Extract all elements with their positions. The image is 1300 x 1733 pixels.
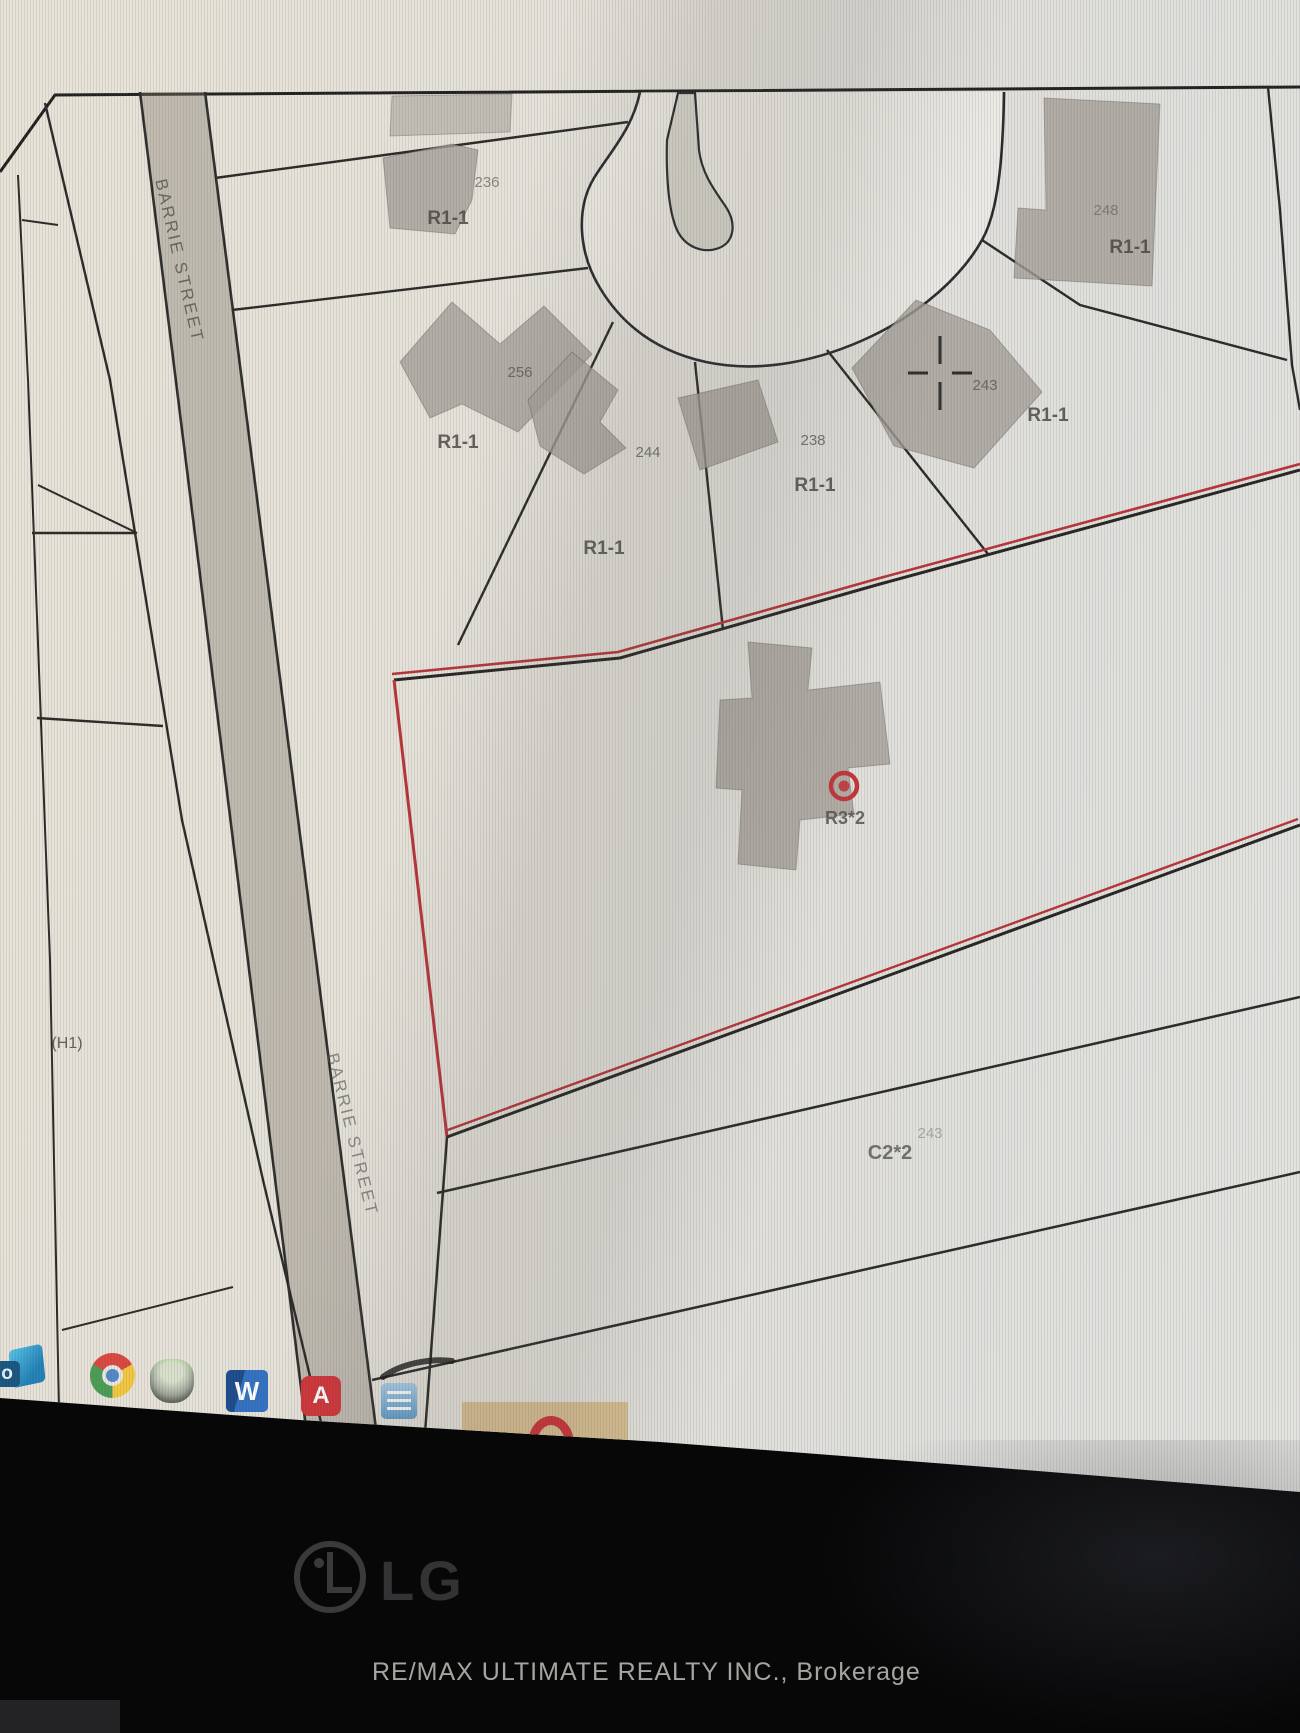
zoning-label: R1-1 <box>583 538 625 559</box>
parcel-line <box>62 1287 233 1330</box>
brokerage-caption: RE/MAX ULTIMATE REALTY INC., Brokerage <box>372 1658 921 1687</box>
zoning-label: R1-1 <box>794 475 836 496</box>
zoning-label: R1-1 <box>1027 405 1069 426</box>
parcel-line <box>372 1172 1300 1380</box>
subject-parcel-outline-black <box>447 825 1300 1137</box>
zoning-label: R1-1 <box>1109 237 1151 258</box>
parcel-line <box>18 175 60 1460</box>
zoning-label: (H1) <box>51 1035 82 1052</box>
taskbar-icon-antivirus[interactable] <box>150 1359 194 1403</box>
parcel-line <box>22 220 58 225</box>
taskbar-icon-acrobat[interactable]: A <box>301 1376 341 1416</box>
building-footprint <box>678 380 778 470</box>
desk-corner <box>0 1700 120 1733</box>
zoning-label: R1-1 <box>437 432 479 453</box>
taskbar-icon-chrome[interactable] <box>90 1353 135 1398</box>
zoning-label: R1-1 <box>427 208 469 229</box>
monitor-bezel-sheen <box>820 1440 1300 1733</box>
lg-emblem-face <box>330 1552 352 1590</box>
taskbar-icon-outlook[interactable]: o <box>0 1347 46 1393</box>
opera-o-icon <box>528 1416 574 1472</box>
taskbar-icon-opera-active-tile[interactable] <box>462 1402 628 1486</box>
lg-wordmark: LG <box>380 1549 466 1612</box>
taskbar-icon-word[interactable]: W <box>226 1370 268 1412</box>
lot-number: 243 <box>972 377 997 394</box>
lg-logo: LG <box>282 1532 542 1627</box>
building-footprint <box>716 642 890 870</box>
lot-number: 238 <box>800 432 825 449</box>
lot-number: 256 <box>507 364 532 381</box>
subject-marker-dot <box>839 781 850 792</box>
subject-parcel-outline-red <box>445 819 1298 1131</box>
parcel-line <box>232 268 588 310</box>
outlook-o-icon: o <box>0 1361 20 1387</box>
parcel-line <box>1268 87 1300 410</box>
parcel-line <box>38 485 137 533</box>
building-footprint <box>390 94 512 136</box>
lot-number: 243 <box>917 1125 942 1142</box>
zoning-label: R3*2 <box>825 808 865 828</box>
parcel-line <box>37 718 163 726</box>
photo-of-monitor: R1-1 R1-1 R1-1 R1-1 R1-1 R1-1 R3*2 C2*2 … <box>0 0 1300 1733</box>
chrome-icon-center <box>102 1365 124 1387</box>
lot-number: 244 <box>635 444 660 461</box>
zoning-label: C2*2 <box>868 1142 912 1164</box>
subject-parcel-outline-red <box>394 680 447 1137</box>
taskbar-icon-mail-app[interactable] <box>381 1383 417 1419</box>
lg-emblem-eye <box>314 1558 324 1568</box>
lot-number: 248 <box>1093 202 1118 219</box>
mail-app-lines-icon <box>387 1391 411 1411</box>
parcel-line <box>423 1137 447 1460</box>
lot-number: 236 <box>474 174 499 191</box>
subject-parcel-outline-red <box>392 464 1300 674</box>
